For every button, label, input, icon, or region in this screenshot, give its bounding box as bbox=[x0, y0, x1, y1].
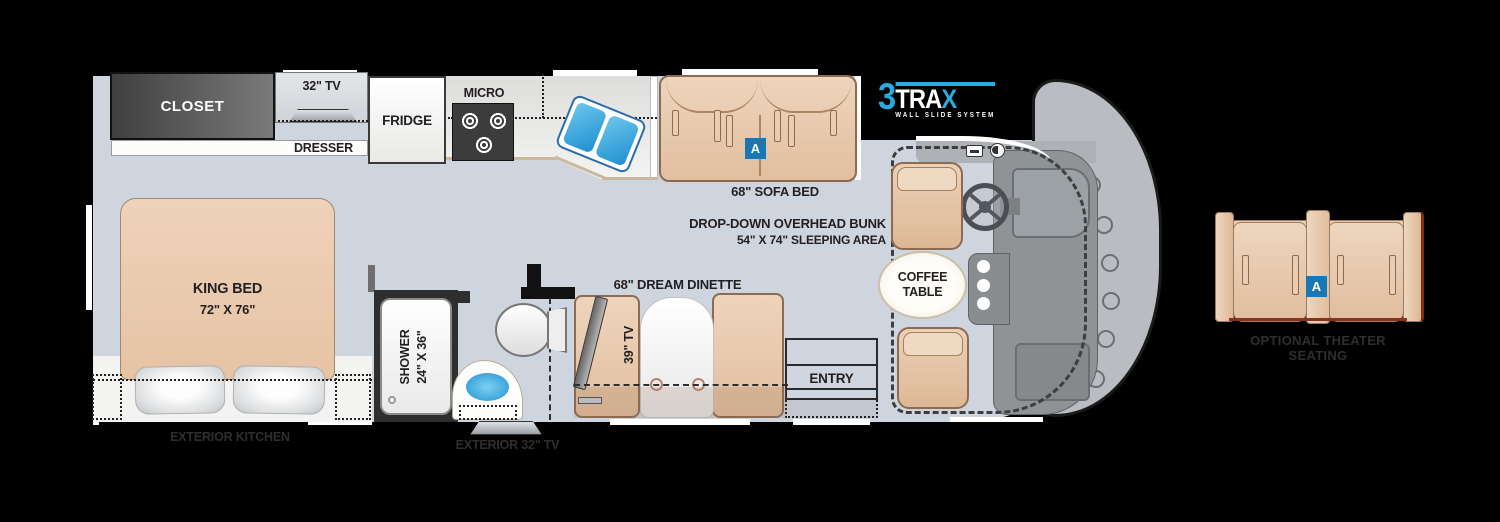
dinette-label: 68" DREAM DINETTE bbox=[595, 277, 760, 292]
window bbox=[553, 70, 637, 77]
pillow bbox=[233, 365, 326, 415]
shower-name: SHOWER bbox=[397, 302, 414, 412]
closet-label: CLOSET bbox=[161, 98, 225, 115]
dresser: DRESSER bbox=[111, 140, 368, 156]
marker-light-icon bbox=[1102, 292, 1120, 310]
bunk-line2: 54" X 74" SLEEPING AREA bbox=[660, 233, 886, 247]
logo-3: 3 bbox=[878, 82, 894, 112]
seatbelt-icon bbox=[1242, 255, 1249, 285]
toilet-wall bbox=[521, 287, 575, 299]
coffee-table-label1: COFFEE bbox=[898, 270, 948, 285]
bath-wall bbox=[368, 265, 375, 292]
sofa-badge-letter: A bbox=[751, 141, 760, 156]
toilet-tank bbox=[547, 307, 567, 353]
counter-dotted-line bbox=[278, 120, 368, 122]
sofa-badge: A bbox=[745, 138, 766, 159]
entry-steps: ENTRY bbox=[785, 338, 878, 400]
theater-badge: A bbox=[1306, 276, 1327, 297]
dinette-slide-line bbox=[574, 384, 788, 386]
bunk-note: DROP-DOWN OVERHEAD BUNK 54" X 74" SLEEPI… bbox=[660, 216, 886, 247]
burner-icon bbox=[459, 110, 481, 132]
exterior-kitchen-label: EXTERIOR KITCHEN bbox=[160, 430, 300, 444]
tv-32-cabinet: 32" TV bbox=[275, 72, 368, 123]
fridge: FRIDGE bbox=[368, 76, 446, 164]
window bbox=[610, 419, 750, 425]
theater-armrest bbox=[1215, 212, 1234, 322]
knob-half bbox=[992, 146, 998, 154]
chair-back bbox=[897, 167, 957, 191]
dresser-label: DRESSER bbox=[294, 141, 353, 155]
passenger-chair bbox=[891, 162, 963, 250]
seatbelt-icon bbox=[1389, 255, 1396, 295]
seatbelt-icon bbox=[830, 110, 837, 136]
toilet-bowl bbox=[495, 303, 552, 357]
bedroom-slide-line bbox=[93, 379, 372, 381]
theater-armrest bbox=[1403, 212, 1424, 322]
king-bed: KING BED 72" X 76" bbox=[120, 198, 335, 380]
entry-door-window bbox=[793, 419, 870, 425]
burner-icon bbox=[487, 110, 509, 132]
micro-label: MICRO bbox=[452, 86, 516, 100]
seatbelt-icon bbox=[1337, 255, 1344, 285]
knob-icon bbox=[990, 143, 1005, 158]
closet: CLOSET bbox=[110, 72, 275, 140]
vent-slot bbox=[970, 150, 979, 153]
counter-trim bbox=[602, 177, 658, 180]
seatbelt-icon bbox=[726, 115, 733, 147]
theater-label: OPTIONAL THEATER SEATING bbox=[1225, 333, 1411, 363]
shower-label-group: SHOWER 24" X 36" bbox=[397, 302, 435, 412]
burner-icon bbox=[473, 134, 495, 156]
shower-drain-icon bbox=[388, 396, 396, 404]
bunk-line1: DROP-DOWN OVERHEAD BUNK bbox=[660, 216, 886, 231]
steering-wheel-icon bbox=[961, 183, 1009, 231]
exterior-tv-label: EXTERIOR 32" TV bbox=[440, 438, 575, 452]
seatbelt-icon bbox=[1292, 255, 1299, 295]
entry-label: ENTRY bbox=[787, 371, 876, 386]
tv-39-label: 39" TV bbox=[622, 310, 638, 380]
sofa-cushion-arc bbox=[666, 79, 758, 113]
logo-tra: TRA bbox=[895, 87, 941, 111]
rear-window bbox=[86, 205, 92, 310]
theater-base-line bbox=[1229, 318, 1407, 321]
logo-x: X bbox=[941, 87, 956, 111]
counter-dotted-line bbox=[542, 74, 544, 118]
seatbelt-icon bbox=[774, 110, 781, 142]
entry-platform bbox=[785, 400, 878, 418]
theater-seat bbox=[1233, 222, 1307, 322]
sofa-label: 68" SOFA BED bbox=[705, 184, 845, 199]
tv-32-label: 32" TV bbox=[276, 79, 367, 93]
stove bbox=[452, 103, 514, 161]
slide-edge bbox=[650, 76, 658, 180]
vent-icon bbox=[966, 145, 983, 157]
chair-back bbox=[903, 332, 963, 356]
vanity-cabinet-outline bbox=[459, 405, 517, 420]
theater-seating: A bbox=[1215, 210, 1420, 322]
bed-name: KING BED bbox=[121, 281, 334, 297]
shower-size: 24" X 36" bbox=[414, 302, 431, 412]
3trax-logo: 3 TRAX WALL SLIDE SYSTEM bbox=[878, 82, 995, 119]
seatbelt-icon bbox=[672, 110, 679, 136]
driver-chair bbox=[897, 327, 969, 409]
seatbelt-icon bbox=[788, 115, 795, 147]
bed-size: 72" X 76" bbox=[121, 302, 334, 317]
theater-console bbox=[1306, 210, 1330, 324]
coffee-table: COFFEE TABLE bbox=[878, 251, 967, 319]
sofa-bed bbox=[659, 75, 857, 182]
marker-light-icon bbox=[1097, 330, 1115, 348]
logo-subtitle: WALL SLIDE SYSTEM bbox=[895, 112, 995, 119]
pillow bbox=[135, 365, 226, 415]
coffee-table-label2: TABLE bbox=[903, 285, 943, 300]
entry-step-line bbox=[787, 364, 876, 366]
fridge-label: FRIDGE bbox=[382, 113, 432, 128]
sofa-cushion-arc bbox=[760, 79, 852, 113]
marker-light-icon bbox=[1101, 254, 1119, 272]
exterior-tv-icon bbox=[470, 421, 542, 435]
nose-bottom-wall bbox=[1030, 414, 1125, 434]
rv-floorplan-diagram: CLOSET 32" TV DRESSER FRIDGE MICRO bbox=[0, 0, 1500, 522]
dinette-slide-shade bbox=[574, 387, 786, 418]
theater-seat bbox=[1328, 222, 1404, 322]
vanity-sink bbox=[464, 371, 511, 403]
theater-badge-letter: A bbox=[1312, 279, 1321, 294]
seatbelt-icon bbox=[714, 110, 721, 142]
entry-step-line bbox=[787, 388, 876, 390]
latch-icon bbox=[578, 397, 602, 404]
window bbox=[950, 417, 1043, 422]
